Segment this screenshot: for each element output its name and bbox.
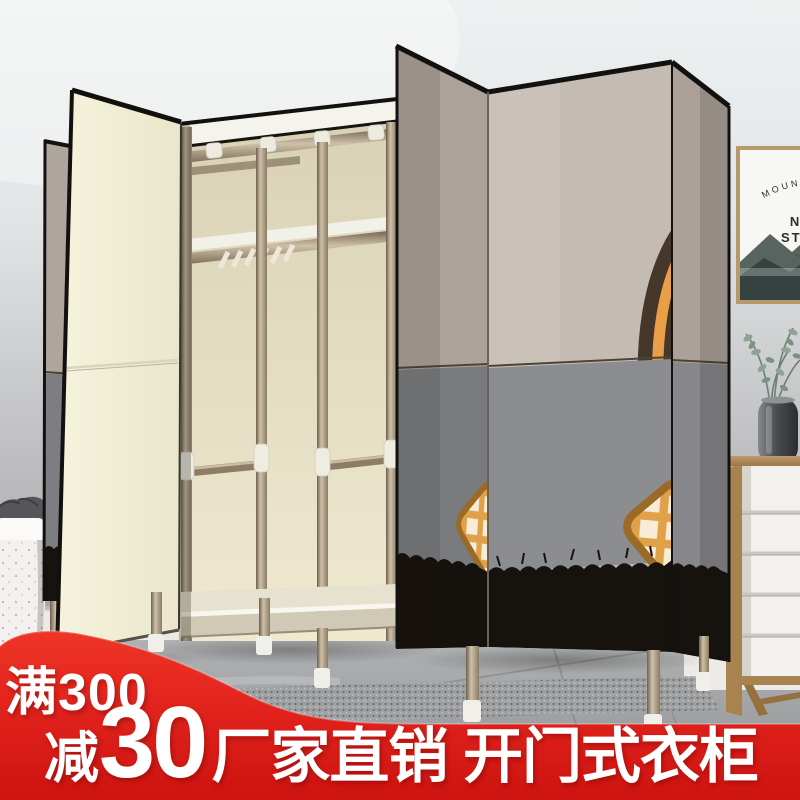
bottom-shelf bbox=[181, 584, 397, 637]
frame-title-line1: NEW bbox=[790, 214, 800, 229]
wardrobe-interior bbox=[179, 97, 399, 641]
dresser bbox=[726, 456, 800, 716]
dresser-rail bbox=[734, 676, 800, 685]
dresser-top bbox=[726, 456, 800, 466]
product-image: MOUNTAIN NEW STORY bbox=[0, 0, 800, 800]
frame-title-line2: STORY bbox=[781, 230, 800, 245]
promo-discount-amount: 30 bbox=[99, 698, 205, 789]
open-door bbox=[57, 90, 181, 653]
promo-discount-suffix: 厂家直销 开门式衣柜 bbox=[211, 708, 758, 795]
promo-discount-text: 减 30 厂家直销 开门式衣柜 bbox=[44, 698, 758, 795]
panel-edge bbox=[44, 140, 45, 601]
vase bbox=[758, 397, 798, 465]
promo-discount-prefix: 减 bbox=[44, 713, 99, 793]
picture-frame: MOUNTAIN NEW STORY bbox=[736, 146, 800, 304]
grass-silhouette bbox=[488, 560, 672, 652]
